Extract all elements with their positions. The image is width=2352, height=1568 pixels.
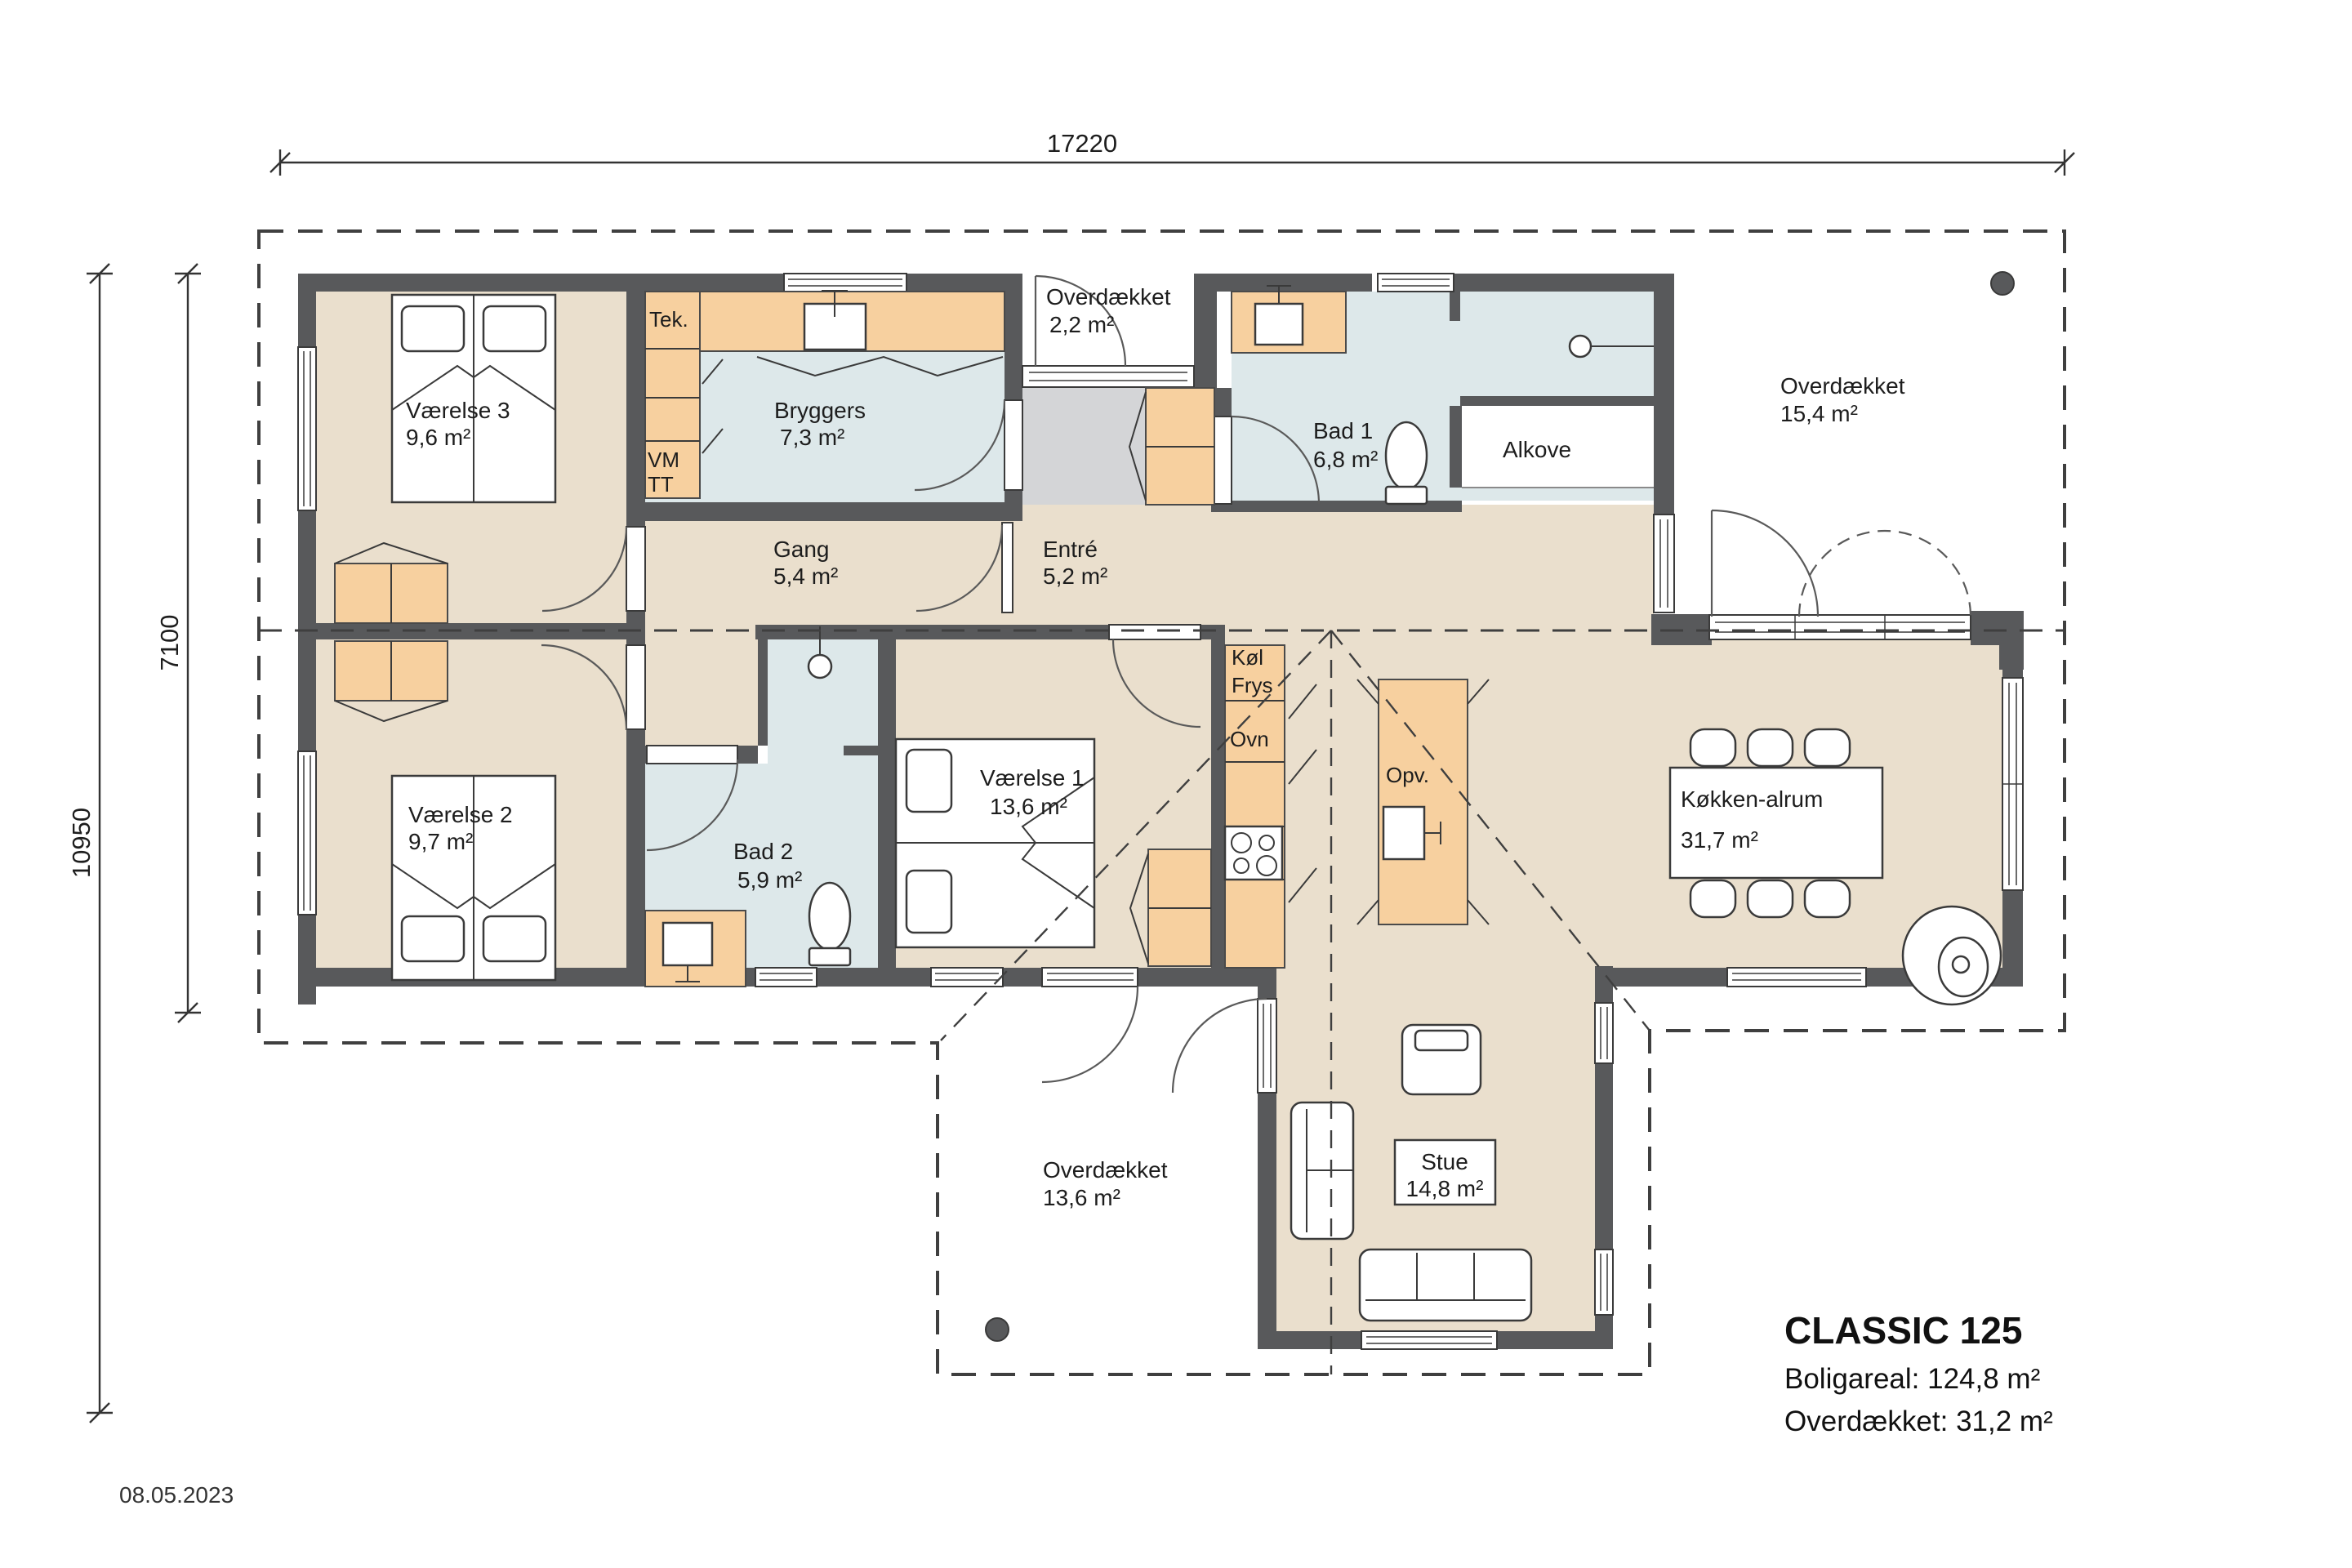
wall-bad2-n2 xyxy=(737,746,758,764)
label-frys: Frys xyxy=(1232,673,1273,697)
dim-10950-label: 10950 xyxy=(67,808,96,878)
door-frame-bryggers xyxy=(1004,400,1022,490)
dining-chairs-bottom xyxy=(1690,880,1850,917)
wall-top-a xyxy=(298,274,784,292)
door-frame-v3 xyxy=(626,527,645,611)
wall-v3v2 xyxy=(316,623,626,639)
plan-overdaekket: Overdækket: 31,2 m² xyxy=(1784,1405,2053,1437)
dim-left-7100: 7100 xyxy=(155,264,201,1022)
label-stue-area: 14,8 m² xyxy=(1406,1176,1484,1201)
label-ov22-name: Overdækket xyxy=(1046,284,1171,310)
label-entre-name: Entré xyxy=(1043,537,1098,562)
dim-top: 17220 xyxy=(270,129,2074,176)
wall-nook-south xyxy=(1460,396,1654,406)
wall-v1-west xyxy=(878,639,896,968)
label-ov136-area: 13,6 m² xyxy=(1043,1185,1120,1210)
label-bryggers-name: Bryggers xyxy=(774,398,866,423)
door-arc-v1-terrace xyxy=(1042,987,1138,1082)
label-opv: Opv. xyxy=(1386,763,1429,787)
wall-wing-east-a xyxy=(2002,645,2023,678)
door-frame-bad2 xyxy=(647,746,737,764)
label-gang-area: 5,4 m² xyxy=(773,563,838,589)
label-ov136-name: Overdækket xyxy=(1043,1157,1168,1183)
door-frame-v1-terrace xyxy=(1042,968,1138,987)
wall-left-c xyxy=(298,915,316,1004)
wall-porch-left xyxy=(1004,274,1022,400)
label-stue-name: Stue xyxy=(1421,1149,1468,1174)
window-stue-east-upper xyxy=(1595,1003,1613,1063)
window-hall-east xyxy=(1654,514,1674,612)
terrace-post-ne xyxy=(1991,272,2014,295)
label-vaerelse2-name: Værelse 2 xyxy=(408,802,513,827)
window-stue-east-lower xyxy=(1595,1249,1613,1315)
label-bad2-name: Bad 2 xyxy=(733,839,793,864)
label-ov22-area: 2,2 m² xyxy=(1049,312,1114,337)
label-ovn: Ovn xyxy=(1230,727,1269,751)
stue-armchair xyxy=(1402,1025,1481,1094)
kitchen-terrace-door xyxy=(1712,510,1818,617)
dim-top-label: 17220 xyxy=(1047,129,1117,158)
label-vaerelse2-area: 9,7 m² xyxy=(408,829,473,854)
wall-left-a xyxy=(298,274,316,347)
door-arc-stue-terrace xyxy=(1173,999,1267,1093)
plan-date: 08.05.2023 xyxy=(119,1482,234,1508)
wall-top-c xyxy=(1194,274,1372,292)
bad2-toilet xyxy=(809,883,850,965)
wall-stue-east-b xyxy=(1595,1063,1613,1249)
wall-w1-b xyxy=(626,611,645,645)
label-vaerelse1-name: Værelse 1 xyxy=(980,765,1085,791)
window-bad1-north xyxy=(1378,274,1454,292)
label-tek: Tek. xyxy=(649,307,688,332)
label-bad2-area: 5,9 m² xyxy=(737,867,802,893)
door-frame-stue-terrace xyxy=(1258,999,1276,1093)
glazing-wing-north xyxy=(1709,615,1971,639)
wall-bottom-d xyxy=(1138,968,1258,987)
terrace-post-sw xyxy=(986,1318,1009,1341)
wall-nook-stub xyxy=(1450,292,1460,321)
dim-left-10950: 10950 xyxy=(67,264,113,1423)
label-vaerelse1-area: 13,6 m² xyxy=(990,794,1067,819)
wall-top-d xyxy=(1454,274,1674,292)
wall-kitchen-col xyxy=(1211,625,1225,968)
window-v3-west xyxy=(298,347,316,510)
label-bryggers-area: 7,3 m² xyxy=(780,425,844,450)
french-doors-dashed-arc xyxy=(1799,531,1971,617)
bad1-toilet xyxy=(1386,422,1427,504)
door-frame-v1 xyxy=(1109,625,1200,639)
wood-stove xyxy=(1903,906,2001,1004)
stue-sofa-bottom xyxy=(1360,1249,1531,1321)
wall-east xyxy=(1654,274,1674,514)
floorplan-page: 17220 7100 10950 Værelse 3 9,6 m² Værels… xyxy=(0,0,2352,1568)
window-wing-east xyxy=(2002,678,2023,890)
label-tt: TT xyxy=(648,472,674,497)
dim-7100-label: 7100 xyxy=(155,615,184,671)
label-vaerelse3-area: 9,6 m² xyxy=(406,425,470,450)
wall-stue-west-a xyxy=(1258,966,1276,999)
wall-stue-south-b xyxy=(1497,1331,1613,1349)
wall-alkove-west xyxy=(1450,406,1462,488)
window-v1-south xyxy=(931,968,1003,987)
wall-stue-east-a xyxy=(1595,966,1613,1003)
stue-sofa-left xyxy=(1291,1102,1353,1239)
entry-sliding-door xyxy=(1022,366,1194,387)
window-wing-south xyxy=(1727,968,1866,987)
title-block: CLASSIC 125 Boligareal: 124,8 m² Overdæk… xyxy=(1784,1309,2053,1437)
wall-w1-c xyxy=(626,729,645,968)
wall-bottom-b xyxy=(817,968,931,987)
label-gang-name: Gang xyxy=(773,537,830,562)
window-bad2-south xyxy=(755,968,817,987)
wall-bad2-n1 xyxy=(637,746,647,764)
label-bad1-name: Bad 1 xyxy=(1313,418,1373,443)
wall-wing-ne-pillar xyxy=(1971,611,2024,645)
label-bad1-area: 6,8 m² xyxy=(1313,447,1378,472)
wall-bottom-c xyxy=(1003,968,1042,987)
bad1-vanity xyxy=(1232,286,1346,353)
window-stue-south xyxy=(1361,1331,1497,1349)
label-vm: VM xyxy=(648,448,679,472)
wall-stue-south-a xyxy=(1258,1331,1361,1349)
kokken-floor xyxy=(1223,625,2023,968)
wall-shower-s xyxy=(844,746,878,755)
label-kokken-name: Køkken-alrum xyxy=(1681,786,1823,812)
window-bryggers-north xyxy=(784,274,906,292)
label-kokken-area: 31,7 m² xyxy=(1681,827,1758,853)
bad2-vanity xyxy=(645,911,746,987)
plan-title: CLASSIC 125 xyxy=(1784,1309,2022,1352)
label-ov154-area: 15,4 m² xyxy=(1780,401,1858,426)
wall-w1-a xyxy=(626,292,645,527)
dining-chairs-top xyxy=(1690,729,1850,766)
window-v2-west xyxy=(298,751,316,915)
label-ov154-name: Overdækket xyxy=(1780,373,1905,399)
wall-porch-right xyxy=(1194,274,1217,388)
wall-wing-south-a xyxy=(1595,968,1727,987)
floorplan-drawing: 17220 7100 10950 Værelse 3 9,6 m² Værels… xyxy=(0,0,2352,1568)
wall-bryggers-south xyxy=(645,502,1013,521)
door-frame-entre xyxy=(1002,523,1013,612)
label-entre-area: 5,2 m² xyxy=(1043,563,1107,589)
wall-spine-a xyxy=(755,625,1109,639)
label-kol: Køl xyxy=(1232,645,1263,670)
door-frame-v2 xyxy=(626,645,645,729)
plan-boligareal: Boligareal: 124,8 m² xyxy=(1784,1363,2040,1395)
label-vaerelse3-name: Værelse 3 xyxy=(406,398,510,423)
wall-stue-west-b xyxy=(1258,1093,1276,1349)
label-alkove: Alkove xyxy=(1503,437,1571,462)
wall-top-b xyxy=(906,274,1004,292)
wall-shower-w xyxy=(758,626,768,746)
